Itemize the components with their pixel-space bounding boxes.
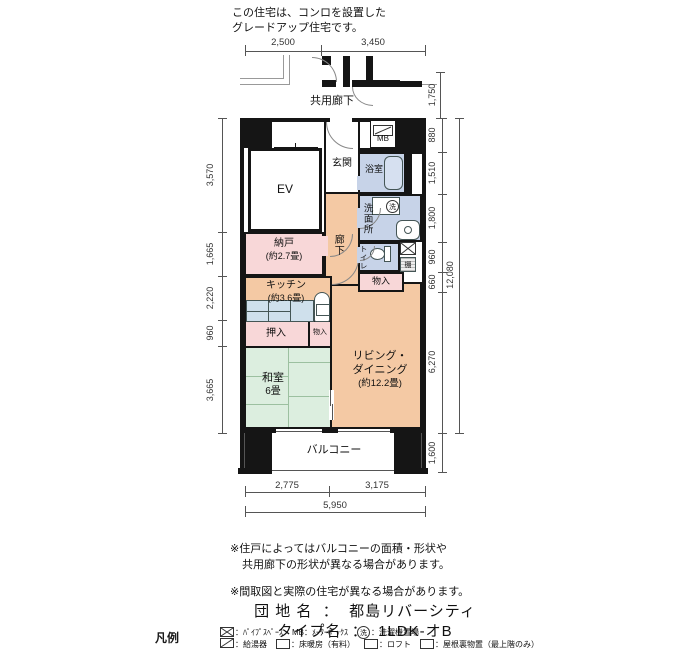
label-kitchen-size: (約3.6畳) [244,293,328,304]
elevator-door-line [274,147,318,148]
dim-tick [438,152,447,153]
dim-left-2: 1,665 [205,232,215,276]
dim-tick [455,118,464,119]
dim-line-bottom-total [245,512,425,513]
header-note-line1: この住宅は、コンロを設置した [232,4,386,20]
dim-right-balcony: 1,600 [427,431,437,475]
legend-mb: MB：ﾒｰﾀｰﾎﾞｯｸｽ [292,627,348,638]
corridor-line [283,55,284,79]
toilet-tank [384,246,391,262]
corridor-line [240,84,290,85]
dim-tick [245,45,246,56]
legend-floor-heating: ：床暖房（有料） [276,639,355,650]
dim-tick [436,72,445,73]
tatami-line [246,404,288,405]
washbasin-bowl [404,226,412,234]
label-ev: EV [248,182,322,197]
wall-below-mb [360,148,422,154]
corridor-gate-door-arc [312,57,337,82]
dim-tick [425,486,426,497]
dim-tick [218,320,227,321]
estate-value: 都島リバーシティ [349,603,476,620]
dim-tick [455,433,464,434]
corridor-wall [352,80,400,87]
legend-pipe-space-label: ：ﾊﾟｲﾌﾟｽﾍﾟｰｽ [235,627,283,638]
dim-tick [245,506,246,517]
dim-tick [321,45,322,56]
dim-bottom-total: 5,950 [305,501,365,511]
shelf-box: 棚 [400,257,416,272]
dim-right-5: 660 [427,260,437,304]
dim-line-right-corridor [440,72,441,118]
legend-floor-heating-label: ：床暖房（有料） [291,639,355,650]
balcony-rail [250,470,416,471]
dim-tick [438,118,447,119]
corridor-wall [366,56,373,87]
legend-row-2: ：給湯器 ：床暖房（有料） ：ロフト ：屋根裏物置（最上階のみ） [220,638,539,650]
legend-washer-label: ：洗濯機置場 [371,627,419,638]
kitchen-fixture [316,304,330,316]
label-closet-right: 物入 [358,276,404,287]
dim-right-2: 1,510 [427,151,437,195]
tatami-line [289,396,330,397]
dim-tick [438,472,447,473]
floor-heating-swatch [276,639,290,649]
legend-title: 凡例 [155,629,179,646]
dim-line-top [245,51,425,52]
header-note-line2: グレードアップ住宅です。 [232,19,363,35]
pipe-space-icon [220,627,234,639]
dim-tick [218,232,227,233]
label-closet-small: 物入 [307,329,333,338]
label-washitsu-name: 和室 [252,372,294,385]
dim-line-right-total [459,118,460,433]
label-oshiire: 押入 [246,328,306,340]
estate-info: 団 地 名 ： 都島リバーシティ [150,600,580,621]
label-living-3: (約12.2畳) [338,378,422,390]
bath-door-gap [357,176,362,190]
legend-mb-label: MB：ﾒｰﾀｰﾎﾞｯｸｽ [292,627,348,638]
dim-left-4: 960 [205,311,215,355]
dim-tick [218,276,227,277]
balcony-rail-end [238,468,272,474]
corridor-wall [395,81,422,87]
balcony-note-line1: ※住戸によってはバルコニーの面積・形状や [230,540,447,556]
dim-tick [438,194,447,195]
dim-tick [245,486,246,497]
wall-right-of-bath [404,152,412,196]
corridor-line [240,78,284,79]
label-living-2: ダイニング [338,364,422,377]
sliding-door-line [330,390,331,406]
sliding-door-line [332,404,333,420]
attic-swatch [420,639,434,649]
plan-note: ※間取図と実際の住宅が異なる場合があります。 [230,583,469,599]
floorplan-page: この住宅は、コンロを設置した グレードアップ住宅です。 2,500 3,450 … [0,0,700,650]
window-line [338,431,390,432]
legend-pipe-space: ：ﾊﾟｲﾌﾟｽﾍﾟｰｽ [220,627,283,639]
estate-sep: ： [323,603,339,620]
dim-line-right [442,118,443,433]
dim-tick [218,118,227,119]
dim-tick [218,433,227,434]
dim-tick [425,506,426,517]
label-kitchen-name: キッチン [244,280,328,292]
corridor-line [289,55,290,85]
label-balcony: バルコニー [296,444,372,457]
elevator-door-tick [295,143,296,151]
legend-loft-label: ：ロフト [379,639,411,650]
dim-tick [438,242,447,243]
label-bath: 浴室 [360,164,388,175]
corridor-wall [343,56,350,87]
label-storage-size: (約2.7畳) [244,251,324,262]
legend-heater-label: ：給湯器 [235,639,267,650]
dim-line-right-balcony [442,433,443,473]
window-line [276,431,322,432]
balcony-rail-end [394,468,428,474]
estate-label: 団 地 名 [254,603,312,620]
washer-circle-icon: 洗 [386,200,399,213]
loft-swatch [364,639,378,649]
water-heater-icon [373,123,393,134]
dim-tick [218,346,227,347]
balcony-note-line2: 共用廊下の形状が異なる場合があります。 [242,556,450,572]
legend-washer-circle-text: 洗 [360,628,367,638]
tatami-line [289,362,330,363]
label-living-1: リビング・ [338,350,422,363]
mb-label: MB [370,134,396,144]
dim-top-1: 2,500 [253,38,313,48]
pipe-space-icon [400,242,416,255]
dim-top-2: 3,450 [343,38,403,48]
legend-attic-label: ：屋根裏物置（最上階のみ） [435,639,539,650]
label-toilet: トイレ [359,244,368,271]
washer-circle-text: 洗 [389,202,396,212]
column-top-left [240,118,272,148]
counter-divider [246,311,290,312]
label-washroom: 洗面所 [361,198,373,240]
label-storage-name: 納戸 [244,238,324,250]
shelf-label: 棚 [405,260,412,270]
dim-tick [425,45,426,56]
label-washitsu-size: 6畳 [252,386,294,398]
dim-line-bottom [245,492,425,493]
legend-attic: ：屋根裏物置（最上階のみ） [420,639,539,650]
water-heater-icon [220,638,234,650]
dim-right-3: 1,800 [427,196,437,240]
dim-right-6: 6,270 [427,340,437,384]
label-hallway: 廊下 [331,230,343,260]
label-entrance: 玄関 [324,158,360,170]
dim-right-total: 12,080 [445,253,455,297]
dim-right-corridor: 1,750 [427,73,437,117]
legend-loft: ：ロフト [364,639,411,650]
corridor-label: 共用廊下 [296,95,368,108]
dim-left-1: 3,570 [205,153,215,197]
dim-left-5: 3,665 [205,368,215,412]
dim-bottom-2: 3,175 [347,481,407,491]
dim-bottom-1: 2,775 [257,481,317,491]
dim-tick [329,486,330,497]
legend-heater: ：給湯器 [220,638,267,650]
